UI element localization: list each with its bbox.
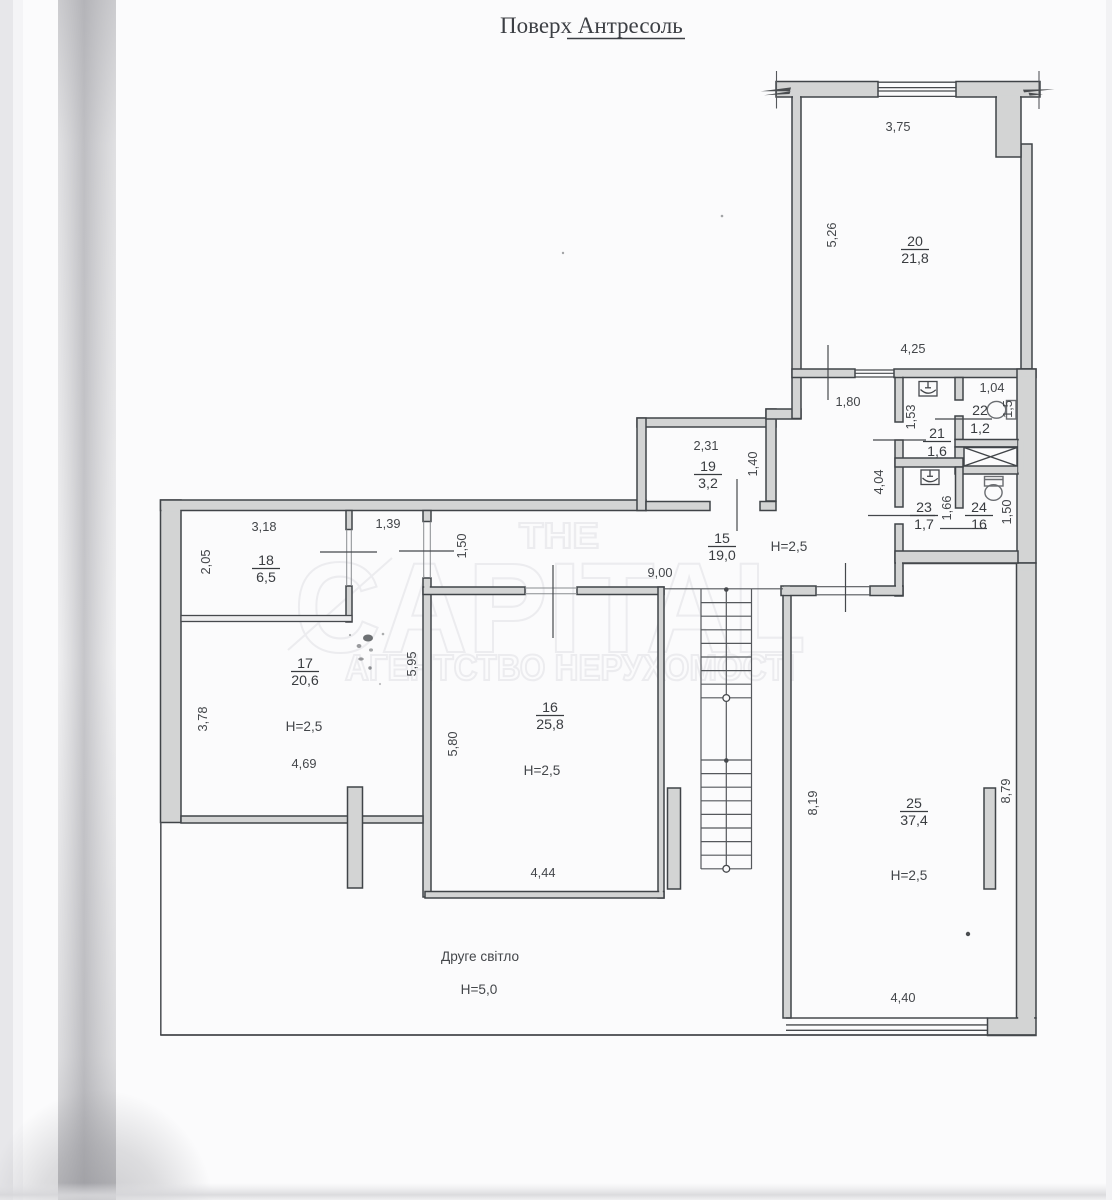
svg-text:1,2: 1,2	[970, 421, 990, 437]
svg-text:3,75: 3,75	[886, 119, 911, 134]
svg-text:3,18: 3,18	[252, 519, 277, 534]
svg-text:25,8: 25,8	[536, 717, 564, 733]
svg-text:18: 18	[258, 553, 274, 569]
svg-text:3,2: 3,2	[698, 476, 718, 492]
svg-text:1,50: 1,50	[999, 500, 1014, 525]
svg-text:25: 25	[906, 796, 922, 812]
svg-text:1,6: 1,6	[927, 444, 947, 460]
svg-text:1,04: 1,04	[980, 380, 1005, 395]
svg-text:1,7: 1,7	[914, 517, 934, 533]
svg-text:16: 16	[542, 700, 558, 716]
svg-text:H=2,5: H=2,5	[891, 868, 928, 883]
svg-text:4,69: 4,69	[292, 756, 317, 771]
svg-text:5,95: 5,95	[404, 652, 419, 677]
svg-text:Друге світло: Друге світло	[441, 949, 519, 964]
svg-text:8,79: 8,79	[998, 779, 1013, 804]
svg-text:4,40: 4,40	[891, 990, 916, 1005]
svg-text:3,78: 3,78	[195, 707, 210, 732]
svg-text:4,44: 4,44	[531, 865, 556, 880]
svg-text:5,80: 5,80	[445, 732, 460, 757]
svg-text:17: 17	[297, 656, 313, 672]
svg-text:6,5: 6,5	[256, 570, 276, 586]
svg-text:20,6: 20,6	[291, 673, 319, 689]
svg-text:4,25: 4,25	[901, 341, 926, 356]
svg-text:22: 22	[972, 403, 988, 419]
svg-text:8,19: 8,19	[805, 791, 820, 816]
svg-text:16: 16	[971, 517, 987, 533]
svg-text:1,5: 1,5	[1000, 400, 1015, 418]
svg-text:1,66: 1,66	[939, 496, 954, 521]
svg-text:1,80: 1,80	[836, 394, 861, 409]
svg-text:37,4: 37,4	[900, 813, 928, 829]
svg-text:H=2,5: H=2,5	[286, 719, 323, 734]
svg-text:Поверх Антресоль: Поверх Антресоль	[500, 13, 683, 38]
svg-text:1,50: 1,50	[454, 534, 469, 559]
svg-text:21,8: 21,8	[901, 251, 929, 267]
svg-text:9,00: 9,00	[648, 565, 673, 580]
svg-text:5,26: 5,26	[824, 223, 839, 248]
svg-text:1,40: 1,40	[745, 452, 760, 477]
svg-text:H=2,5: H=2,5	[771, 539, 808, 554]
svg-text:1,53: 1,53	[903, 405, 918, 430]
svg-text:21: 21	[929, 426, 945, 442]
svg-text:24: 24	[971, 500, 987, 516]
svg-text:15: 15	[714, 531, 730, 547]
svg-text:4,04: 4,04	[871, 470, 886, 495]
svg-text:23: 23	[916, 500, 932, 516]
svg-text:19: 19	[700, 459, 716, 475]
svg-text:H=2,5: H=2,5	[524, 763, 561, 778]
svg-text:2,05: 2,05	[198, 550, 213, 575]
svg-text:2,31: 2,31	[694, 438, 719, 453]
svg-text:1,39: 1,39	[376, 516, 401, 531]
svg-text:19,0: 19,0	[708, 548, 736, 564]
svg-text:H=5,0: H=5,0	[461, 982, 498, 997]
svg-text:20: 20	[907, 234, 923, 250]
